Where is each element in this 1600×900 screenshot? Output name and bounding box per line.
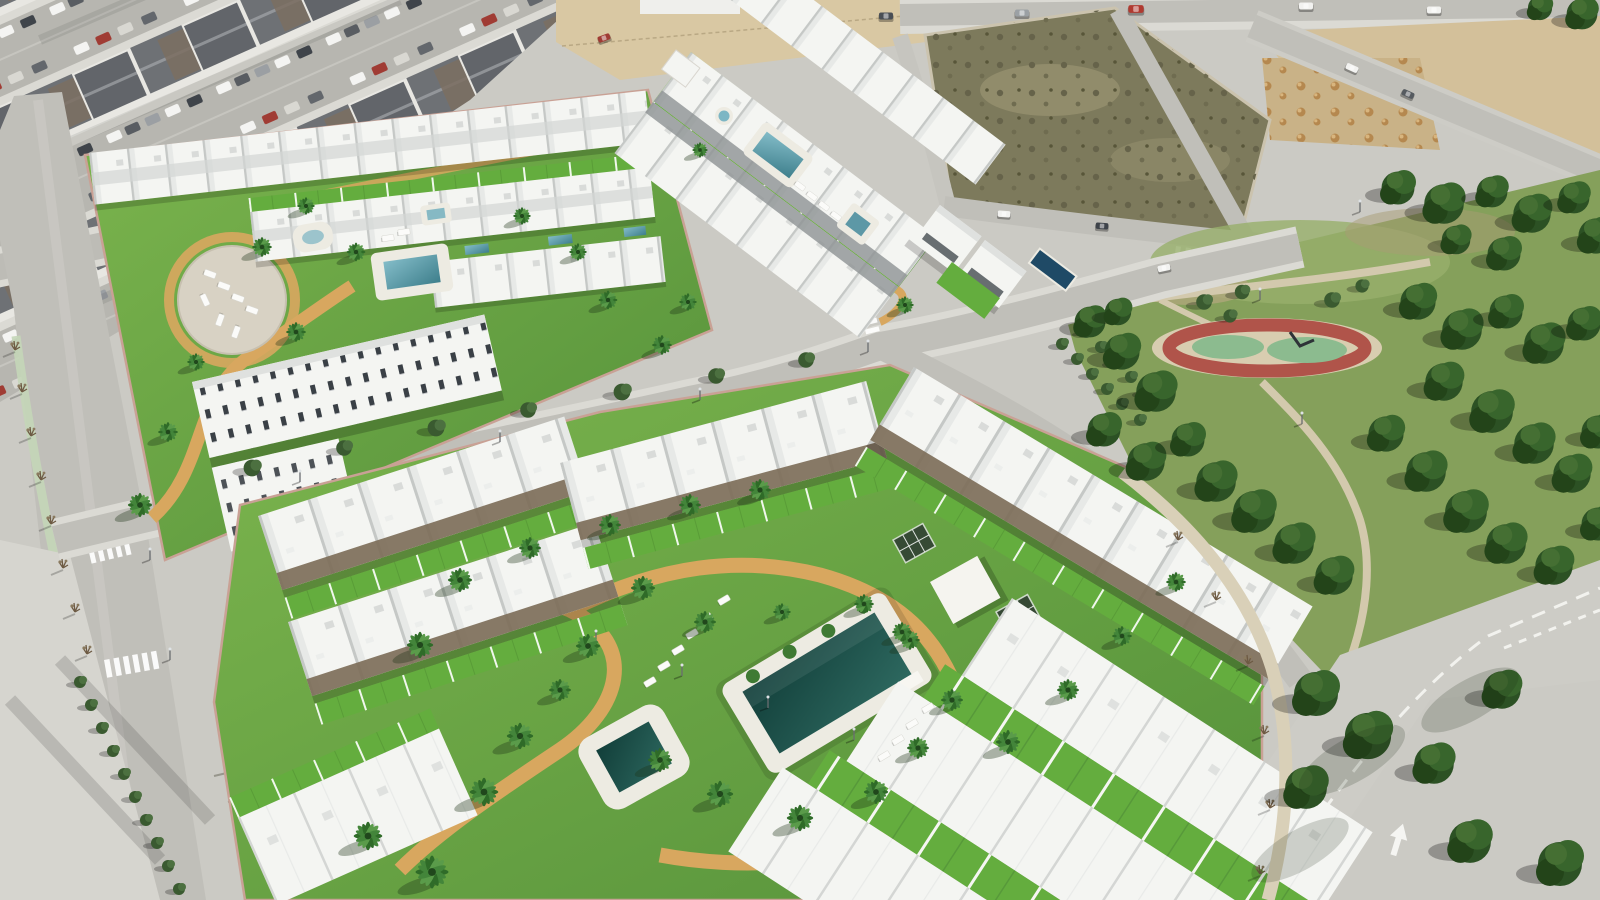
mid-fountain	[715, 107, 733, 125]
playground	[1152, 318, 1382, 378]
aerial-development-render	[0, 0, 1600, 900]
nw-small-pool	[420, 202, 452, 226]
aerial-render-viewport	[0, 0, 1600, 900]
